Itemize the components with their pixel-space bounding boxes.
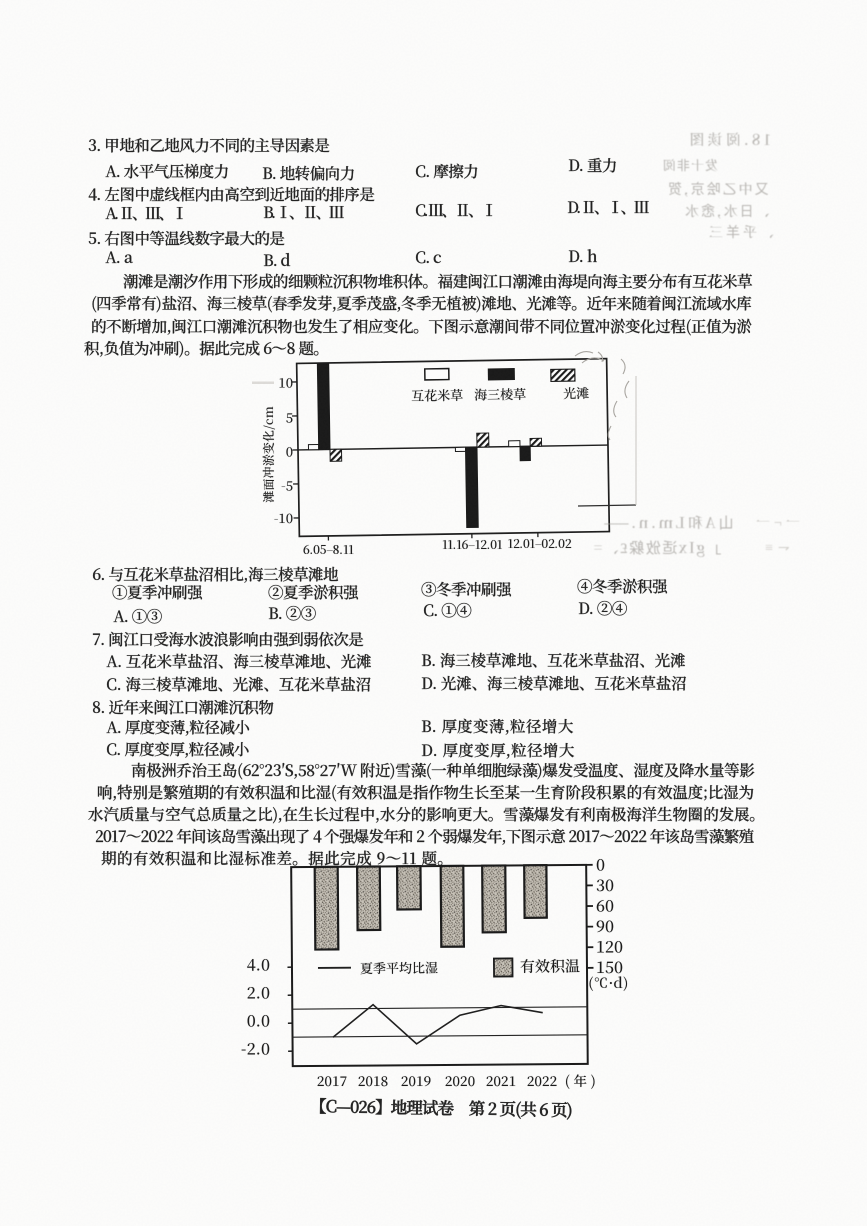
svg-text:5: 5 bbox=[286, 407, 293, 426]
svg-text:2019: 2019 bbox=[401, 1070, 431, 1090]
svg-text:-5: -5 bbox=[281, 475, 293, 494]
svg-text:光滩: 光滩 bbox=[563, 383, 590, 402]
svg-text:滩面冲淤变化/cm: 滩面冲淤变化/cm bbox=[260, 406, 277, 504]
svg-text:4.0: 4.0 bbox=[247, 953, 270, 976]
svg-text:海三棱草: 海三棱草 bbox=[474, 384, 526, 404]
svg-text:-2.0: -2.0 bbox=[241, 1037, 270, 1060]
svg-text:2018: 2018 bbox=[358, 1070, 388, 1090]
svg-text:(年): (年) bbox=[565, 1070, 599, 1090]
svg-text:互花米草: 互花米草 bbox=[411, 385, 463, 405]
svg-text:2020: 2020 bbox=[445, 1070, 475, 1090]
svg-text:0.0: 0.0 bbox=[247, 1009, 270, 1032]
svg-text:夏季平均比湿: 夏季平均比湿 bbox=[360, 958, 438, 978]
svg-text:2017: 2017 bbox=[317, 1070, 347, 1090]
svg-text:12.01–02.02: 12.01–02.02 bbox=[508, 535, 572, 552]
svg-text:2.0: 2.0 bbox=[247, 981, 270, 1004]
svg-text:6.05–8.11: 6.05–8.11 bbox=[303, 541, 354, 558]
svg-text:2021: 2021 bbox=[486, 1070, 516, 1090]
svg-text:11.16–12.01: 11.16–12.01 bbox=[442, 536, 503, 553]
svg-text:-10: -10 bbox=[274, 508, 293, 527]
svg-text:0: 0 bbox=[286, 441, 293, 460]
svg-text:2022: 2022 bbox=[527, 1070, 557, 1090]
svg-text:有效积温: 有效积温 bbox=[520, 955, 580, 976]
svg-text:10: 10 bbox=[278, 373, 293, 392]
svg-text:(℃·d): (℃·d) bbox=[588, 973, 629, 993]
